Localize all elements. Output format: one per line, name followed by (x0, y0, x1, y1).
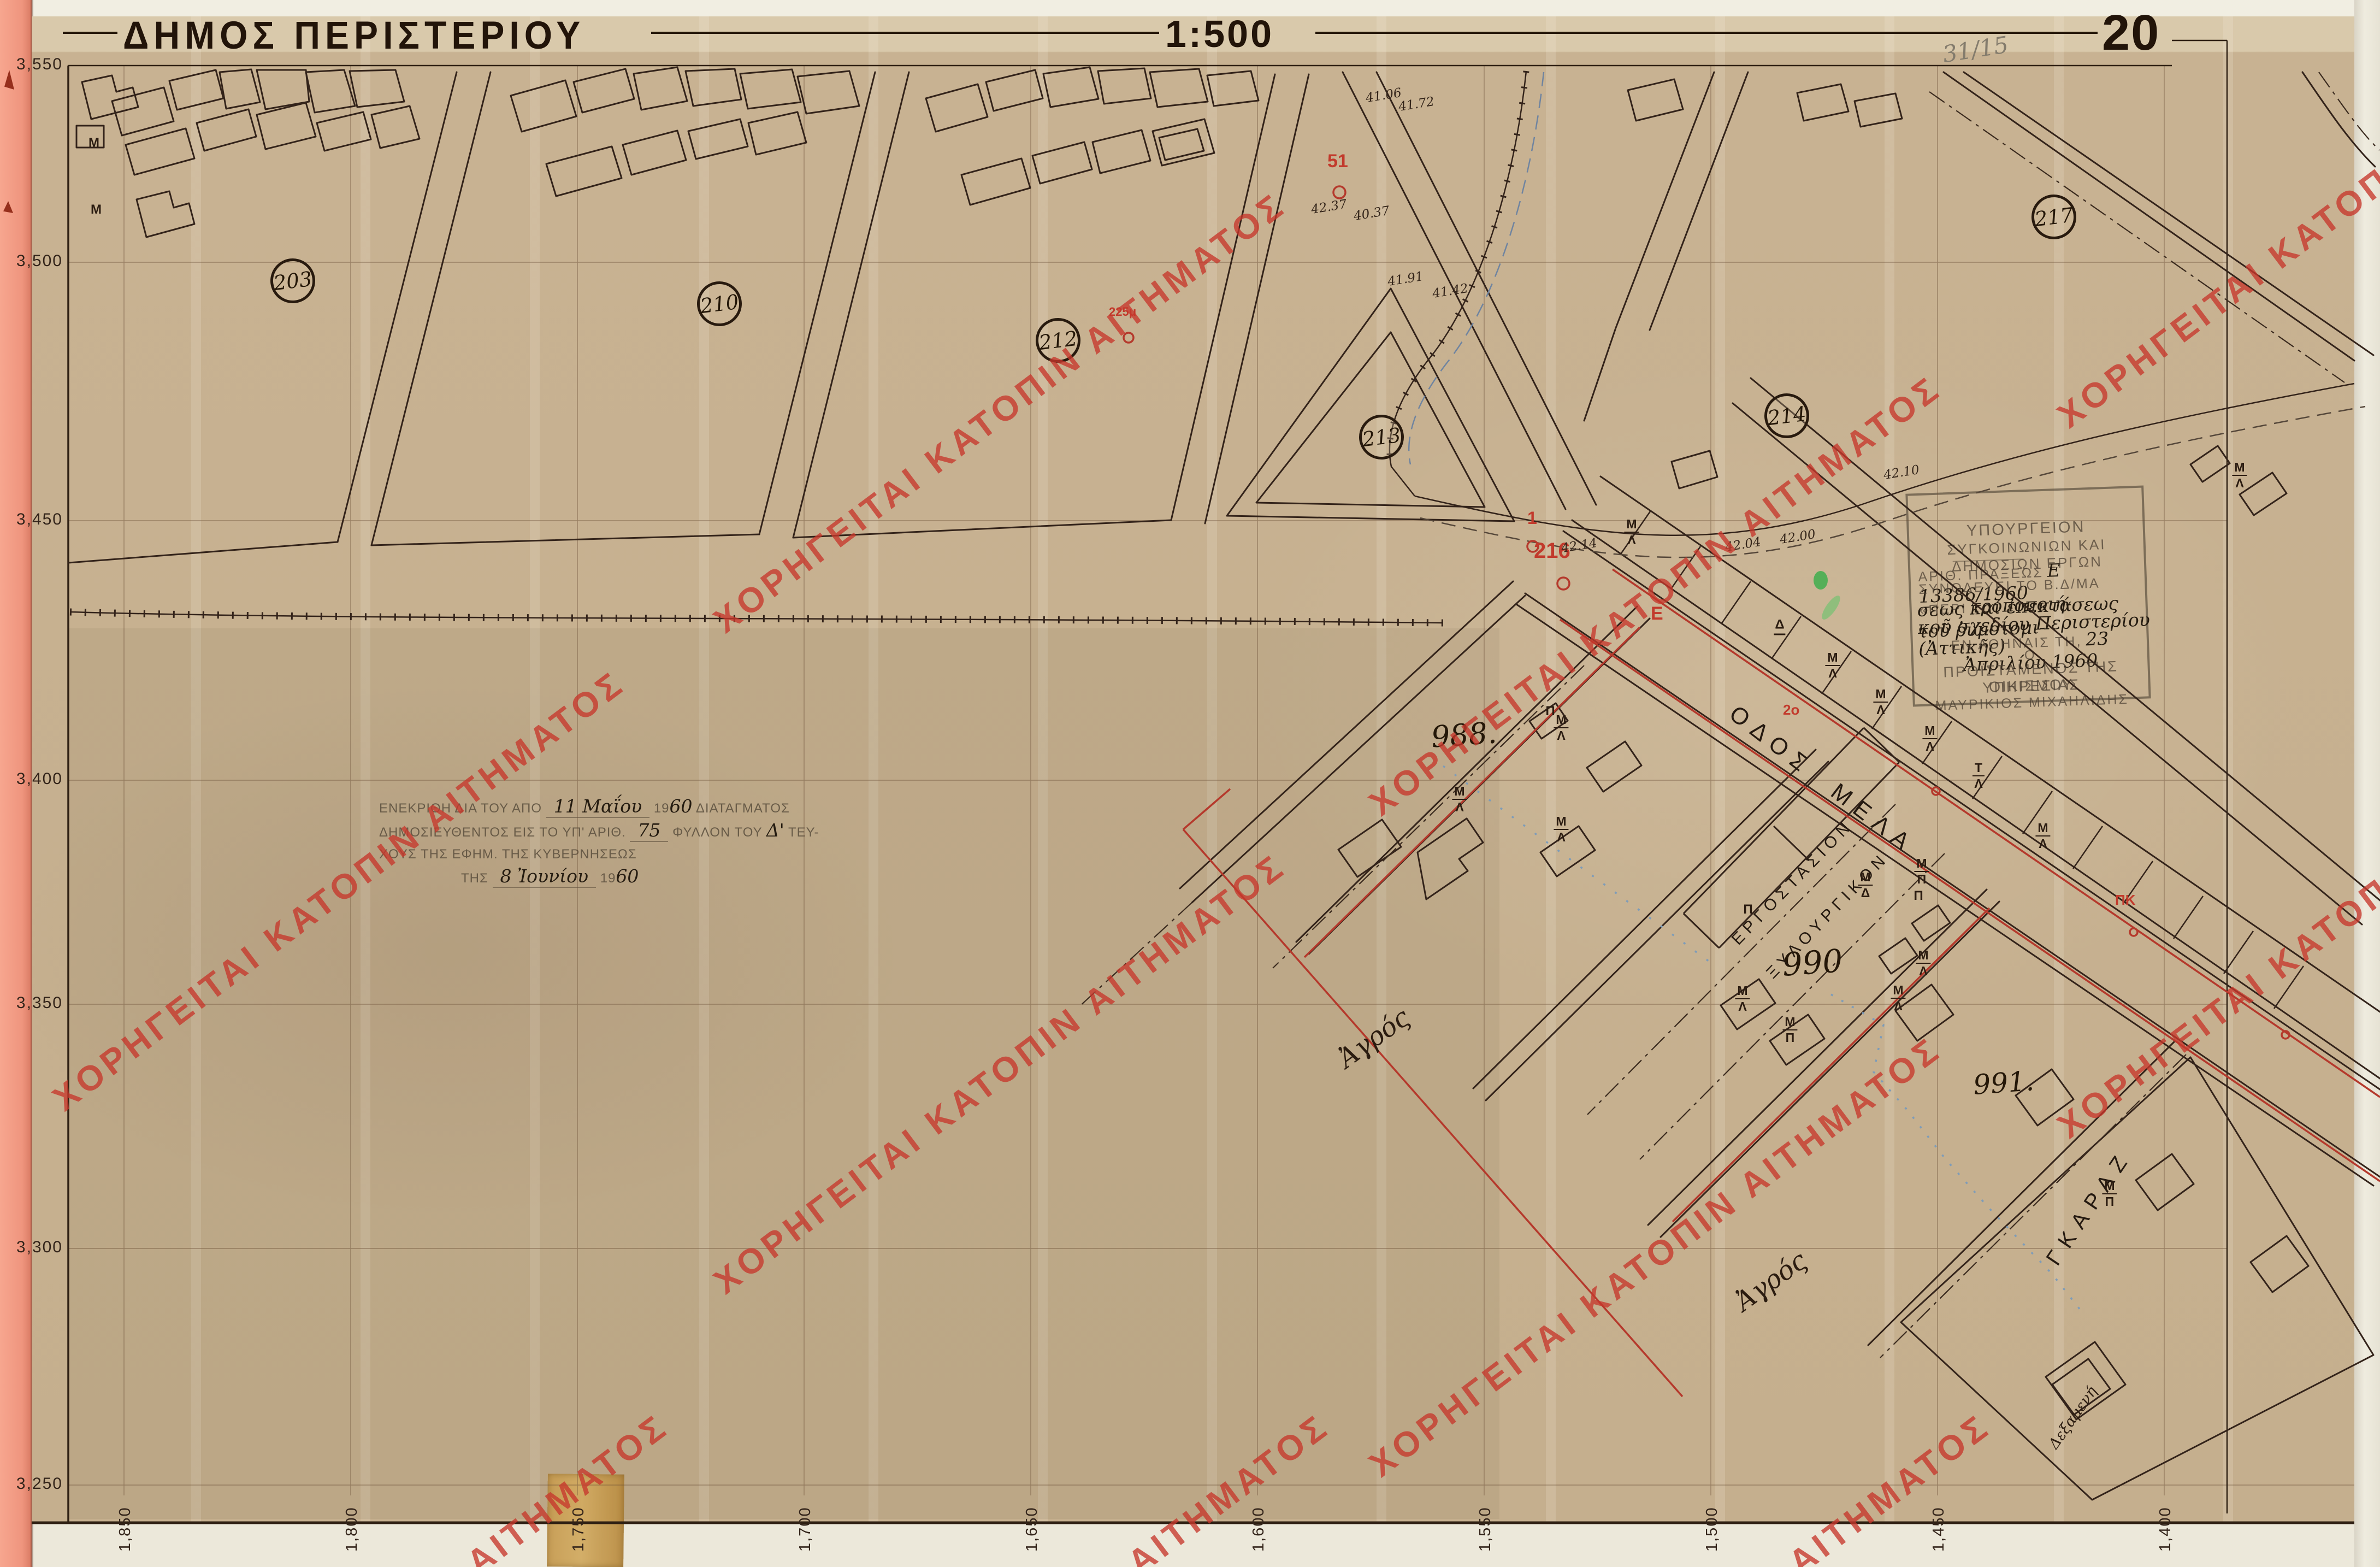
y-axis-label: 3,300 (11, 1238, 63, 1257)
building-code: ΜΔ (1858, 871, 1873, 899)
building-code: ΜΛ (1624, 518, 1639, 546)
red-mark: ΠΚ (2115, 892, 2136, 909)
building-code: ΤΛ (1972, 762, 1985, 790)
building-code: ΜΛ (1452, 785, 1467, 814)
building-code-top: Μ (1825, 651, 1840, 666)
y-axis-label: 3,450 (11, 510, 63, 529)
building-code-bottom: Λ (1825, 666, 1840, 680)
y-axis-label: 3,250 (11, 1475, 63, 1493)
x-axis-label: 1,650 (1023, 1487, 1041, 1552)
red-mark: 51 (1327, 151, 1348, 172)
building-code: ΜΛ (1554, 815, 1568, 844)
y-axis-label: 3,350 (11, 994, 63, 1012)
page-title: ΔΗΜΟΣ ΠΕΡΙΣΤΕΡΙΟΥ (123, 13, 585, 57)
building-code: ΜΛ (1554, 714, 1568, 742)
x-axis-label: 1,800 (343, 1487, 361, 1552)
green-marks (1814, 571, 1843, 622)
building-code: ΜΛ (1825, 651, 1840, 680)
cadastral-map-sheet: ΔΗΜΟΣ ΠΕΡΙΣΤΕΡΙΟΥ 1:500 20 31/15 ΥΠΟΥΡΓΕ… (0, 0, 2380, 1567)
building-code-single: Π (1914, 888, 1923, 904)
map-scale: 1:500 (1165, 12, 1274, 56)
y-axis-label: 3,550 (11, 55, 63, 74)
building-code: ΜΠ (1782, 1016, 1797, 1044)
building-code: ΜΠ (1914, 857, 1929, 886)
building-code: ΜΛ (1873, 688, 1888, 716)
coordinate-grid (68, 66, 2354, 1495)
x-axis-label: 1,400 (2157, 1487, 2175, 1552)
x-axis-label: 1,450 (1930, 1487, 1948, 1552)
building-code: ΜΛ (2232, 461, 2247, 490)
building-code-single: Μ (88, 136, 99, 151)
building-code-single: Π (1743, 902, 1752, 917)
y-axis-label: 3,500 (11, 252, 63, 270)
map-linework (0, 0, 2380, 1567)
x-axis-label: 1,700 (796, 1487, 814, 1552)
building-code: ΜΛ (1922, 724, 1937, 753)
building-code: ΜΛ (1735, 985, 1750, 1013)
buildings-group (76, 67, 2373, 1500)
building-code: ΜΛ (1916, 949, 1930, 977)
parcel-number: 991. (1972, 1065, 2035, 1101)
building-code-single: Δ (1774, 617, 1785, 635)
x-axis-label: 1,550 (1477, 1487, 1495, 1552)
building-code: ΜΠ (2102, 1180, 2117, 1208)
x-axis-label: 1,850 (116, 1487, 134, 1552)
building-code-single: Π (1545, 704, 1555, 719)
x-axis-label: 1,500 (1703, 1487, 1721, 1552)
building-code: ΜΛ (1891, 984, 1905, 1012)
building-code-single: Μ (91, 202, 102, 217)
building-code: ΜΛ (2035, 822, 2050, 850)
red-mark: 2ο (1783, 702, 1799, 718)
y-axis-label: 3,400 (11, 770, 63, 788)
blue-survey-lines (1443, 766, 2082, 1312)
red-mark: 1 (1527, 508, 1537, 528)
sheet-number: 20 (2102, 4, 2160, 62)
